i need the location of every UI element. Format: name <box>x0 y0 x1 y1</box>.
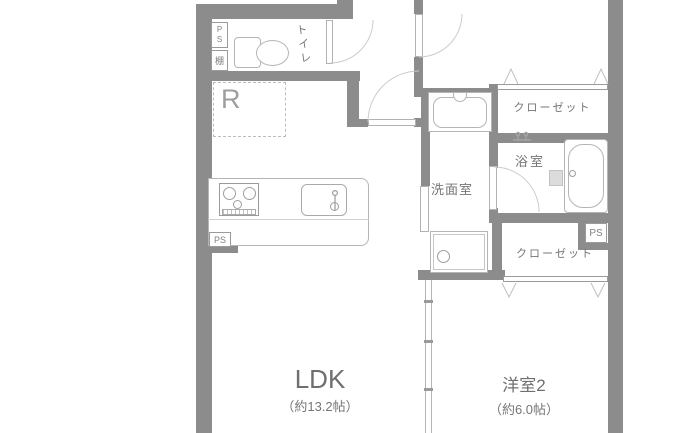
shelf-box: 棚 <box>211 50 228 71</box>
partition-tick <box>424 388 433 391</box>
stove-grill <box>222 209 256 215</box>
stove-burner <box>243 187 256 200</box>
closet-lower-door-mark <box>502 283 516 297</box>
refrigerator-label: R <box>221 84 241 115</box>
refrigerator-space: R <box>213 82 286 137</box>
wall-bath-bottom <box>492 213 613 223</box>
ldk-door-arc <box>368 71 419 122</box>
closet-upper-door-mark <box>594 69 608 84</box>
washroom-sliding-door <box>420 186 429 232</box>
room-label-washroom: 洗面室 <box>431 179 473 198</box>
room-label-ldk-group: LDK （約13.2帖） <box>268 364 372 415</box>
stove-burner <box>223 187 236 200</box>
bathroom-door-leaf <box>489 166 497 210</box>
ldk-door-leaf <box>368 119 416 126</box>
partition-tick <box>424 300 433 303</box>
bathtub-drain <box>569 170 576 177</box>
wall-hall-west-top <box>414 0 423 14</box>
floor-plan: PS 棚 PS PS R <box>0 0 700 433</box>
shelf-label: 棚 <box>215 54 224 67</box>
room-label-toilet: トイレ <box>292 23 314 67</box>
wall-toilet-bottom <box>196 71 360 81</box>
pipe-space-toilet: PS <box>211 22 228 48</box>
kitchen-sink <box>301 184 347 216</box>
room-size-bedroom2: （約6.0帖） <box>489 399 559 418</box>
bathroom-door-arc <box>494 167 539 212</box>
wall-top-stub <box>337 0 353 19</box>
wall-top-toilet <box>196 4 353 19</box>
washer-drain <box>437 250 450 263</box>
toilet-bowl <box>256 40 289 66</box>
pipe-space-closet: PS <box>585 223 607 243</box>
pipe-space-label: PS <box>589 228 602 239</box>
entry-room-door-leaf <box>415 14 423 57</box>
closet-upper-rail <box>497 84 608 90</box>
toilet-door-leaf <box>326 20 333 64</box>
room-label-bathroom: 浴室 <box>515 151 545 170</box>
room-label-bedroom2-group: 洋室2 （約6.0帖） <box>472 371 576 418</box>
toilet-door-arc <box>330 20 373 63</box>
wall-ldk-door-jamb <box>347 119 368 127</box>
room-label-bedroom2: 洋室2 <box>502 371 545 396</box>
closet-lower-door-mark <box>591 283 605 297</box>
closet-upper-door-mark <box>504 69 518 84</box>
pipe-space-kitchen: PS <box>209 232 231 247</box>
wall-right-exterior <box>608 0 623 433</box>
partition-tick <box>424 340 433 343</box>
kitchen-counter-front-edge <box>208 219 369 220</box>
room-size-ldk: （約13.2帖） <box>281 396 358 415</box>
room-label-ldk: LDK <box>295 364 346 395</box>
room-label-closet-lower: クローゼット <box>500 245 610 261</box>
entry-room-door-arc <box>419 14 462 57</box>
pipe-space-label: PS <box>215 25 224 45</box>
closet-lower-rail <box>503 276 608 282</box>
room-label-closet-upper: クローゼット <box>497 99 608 115</box>
sink-drain <box>330 202 339 211</box>
pipe-space-label: PS <box>214 235 226 245</box>
bath-counter-square <box>549 170 563 186</box>
wall-hall-step <box>347 71 359 122</box>
stove-burner-small <box>233 200 242 209</box>
